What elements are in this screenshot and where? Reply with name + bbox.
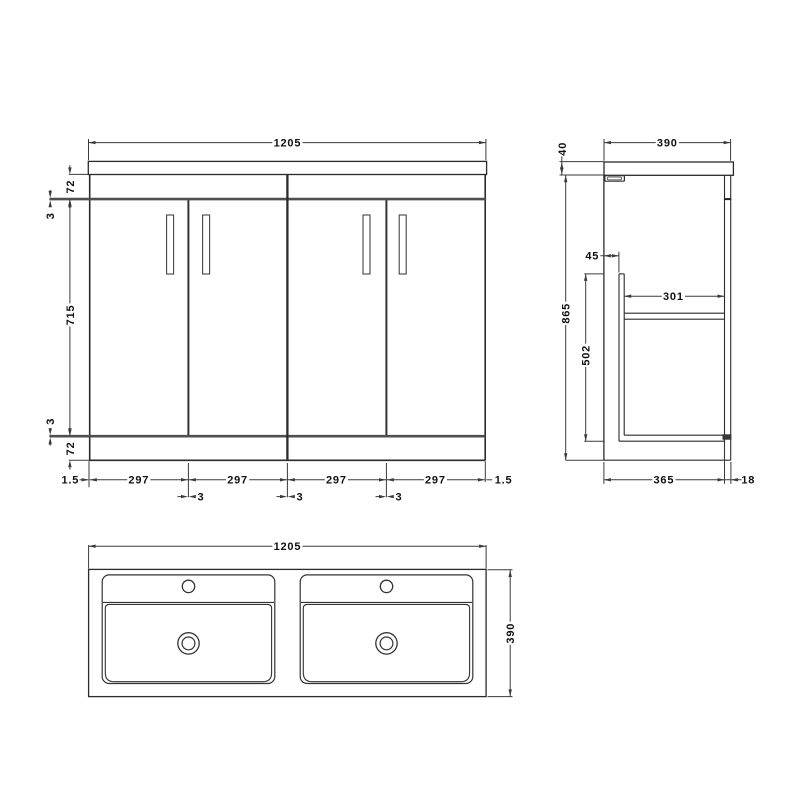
svg-text:72: 72 [65, 441, 77, 455]
svg-text:502: 502 [581, 345, 593, 366]
svg-text:865: 865 [561, 303, 573, 324]
svg-text:45: 45 [585, 251, 599, 263]
svg-text:1205: 1205 [274, 138, 302, 150]
svg-text:297: 297 [128, 475, 149, 487]
svg-text:3: 3 [296, 492, 303, 504]
svg-text:1.5: 1.5 [495, 475, 513, 487]
svg-text:297: 297 [425, 475, 446, 487]
svg-text:72: 72 [65, 180, 77, 194]
svg-text:40: 40 [557, 142, 569, 156]
svg-text:297: 297 [227, 475, 248, 487]
svg-text:365: 365 [654, 475, 675, 487]
svg-text:297: 297 [326, 475, 347, 487]
svg-text:390: 390 [657, 138, 678, 150]
svg-text:301: 301 [663, 291, 684, 303]
svg-text:1.5: 1.5 [61, 475, 79, 487]
svg-text:1205: 1205 [274, 541, 302, 553]
svg-text:3: 3 [45, 212, 57, 219]
svg-text:715: 715 [65, 305, 77, 326]
svg-text:3: 3 [197, 492, 204, 504]
svg-text:3: 3 [395, 492, 402, 504]
svg-text:18: 18 [741, 475, 755, 487]
svg-text:390: 390 [505, 623, 517, 644]
svg-text:3: 3 [45, 418, 57, 425]
